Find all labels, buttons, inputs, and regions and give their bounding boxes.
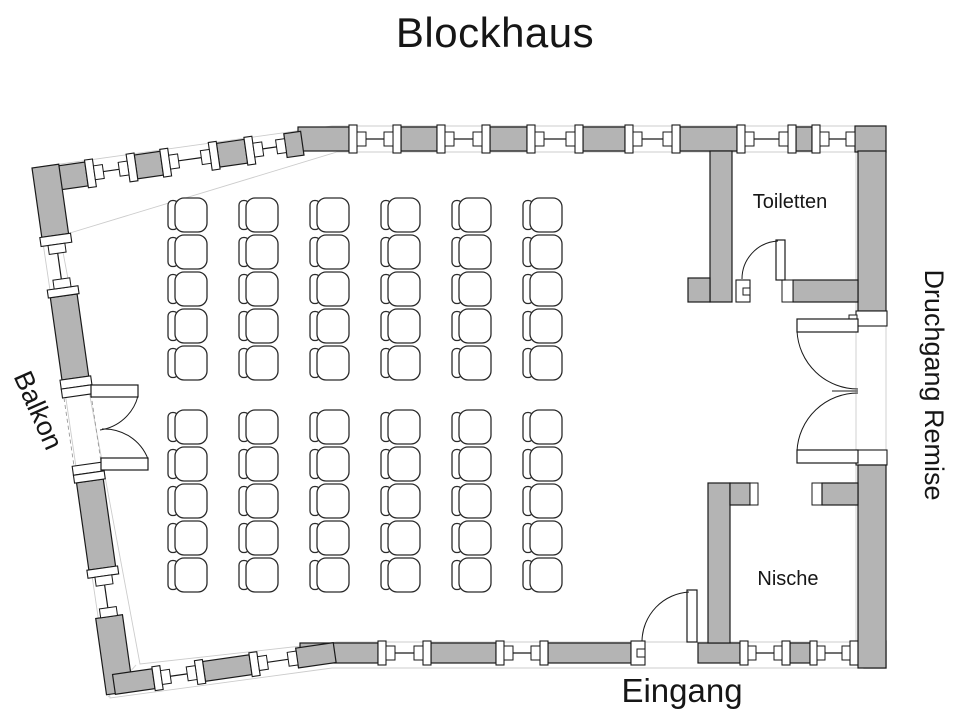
chair: [168, 484, 207, 518]
wall-bottom-horizontal: [300, 641, 886, 668]
chair: [523, 558, 562, 592]
chair: [310, 558, 349, 592]
chair: [523, 198, 562, 232]
chair: [168, 272, 207, 306]
chair: [168, 309, 207, 343]
chair: [523, 521, 562, 555]
chair: [523, 346, 562, 380]
chair: [239, 309, 278, 343]
nische-walls: [708, 483, 858, 643]
wall-right: [849, 151, 887, 668]
seats-layer: [168, 198, 562, 592]
chair: [168, 198, 207, 232]
chair: [239, 484, 278, 518]
chair: [452, 447, 491, 481]
balkon-double-door: [64, 385, 148, 470]
floor-plan-page: Blockhaus Toiletten Nische Balkon Druchg…: [0, 0, 954, 713]
wall-top-horizontal: [298, 125, 886, 153]
chair: [310, 521, 349, 555]
chair: [310, 346, 349, 380]
chair: [239, 521, 278, 555]
chair: [523, 410, 562, 444]
chair: [381, 272, 420, 306]
area-label-balkon: Balkon: [8, 367, 69, 455]
chair: [239, 198, 278, 232]
chair: [239, 272, 278, 306]
chair: [381, 346, 420, 380]
chair: [452, 346, 491, 380]
chair: [523, 484, 562, 518]
chair: [168, 235, 207, 269]
area-label-druchgang-remise: Druchgang Remise: [919, 269, 949, 500]
chair: [310, 410, 349, 444]
chair: [310, 447, 349, 481]
chair: [452, 558, 491, 592]
entrance-door: [642, 590, 697, 642]
chair: [523, 272, 562, 306]
chair: [168, 521, 207, 555]
chair: [452, 235, 491, 269]
chair: [239, 410, 278, 444]
chair: [452, 410, 491, 444]
chair: [523, 447, 562, 481]
chair: [381, 558, 420, 592]
chair: [452, 309, 491, 343]
chair: [239, 447, 278, 481]
toiletten-walls: [688, 151, 858, 302]
chair: [381, 410, 420, 444]
chair: [310, 235, 349, 269]
chair: [168, 447, 207, 481]
chair: [381, 484, 420, 518]
wall-bottom-slanted: [112, 641, 336, 697]
area-label-eingang: Eingang: [621, 672, 742, 709]
chair: [381, 235, 420, 269]
chair: [168, 346, 207, 380]
chair: [523, 309, 562, 343]
chair: [452, 198, 491, 232]
chair: [239, 235, 278, 269]
chair: [239, 346, 278, 380]
chair: [452, 521, 491, 555]
chair: [168, 410, 207, 444]
chair: [310, 484, 349, 518]
chair: [168, 558, 207, 592]
wall-top-slanted: [41, 129, 304, 194]
chair: [310, 272, 349, 306]
chair: [381, 447, 420, 481]
toiletten-door: [742, 240, 785, 280]
remise-double-door: [797, 319, 858, 463]
chair: [381, 198, 420, 232]
chair: [239, 558, 278, 592]
chair: [452, 484, 491, 518]
chair: [310, 198, 349, 232]
chair: [381, 309, 420, 343]
room-label-nische: Nische: [757, 568, 818, 590]
chair: [523, 235, 562, 269]
page-title: Blockhaus: [396, 9, 594, 56]
chair: [381, 521, 420, 555]
chair: [310, 309, 349, 343]
floor-plan: Blockhaus Toiletten Nische Balkon Druchg…: [0, 0, 954, 713]
chair: [452, 272, 491, 306]
room-label-toiletten: Toiletten: [753, 191, 828, 213]
